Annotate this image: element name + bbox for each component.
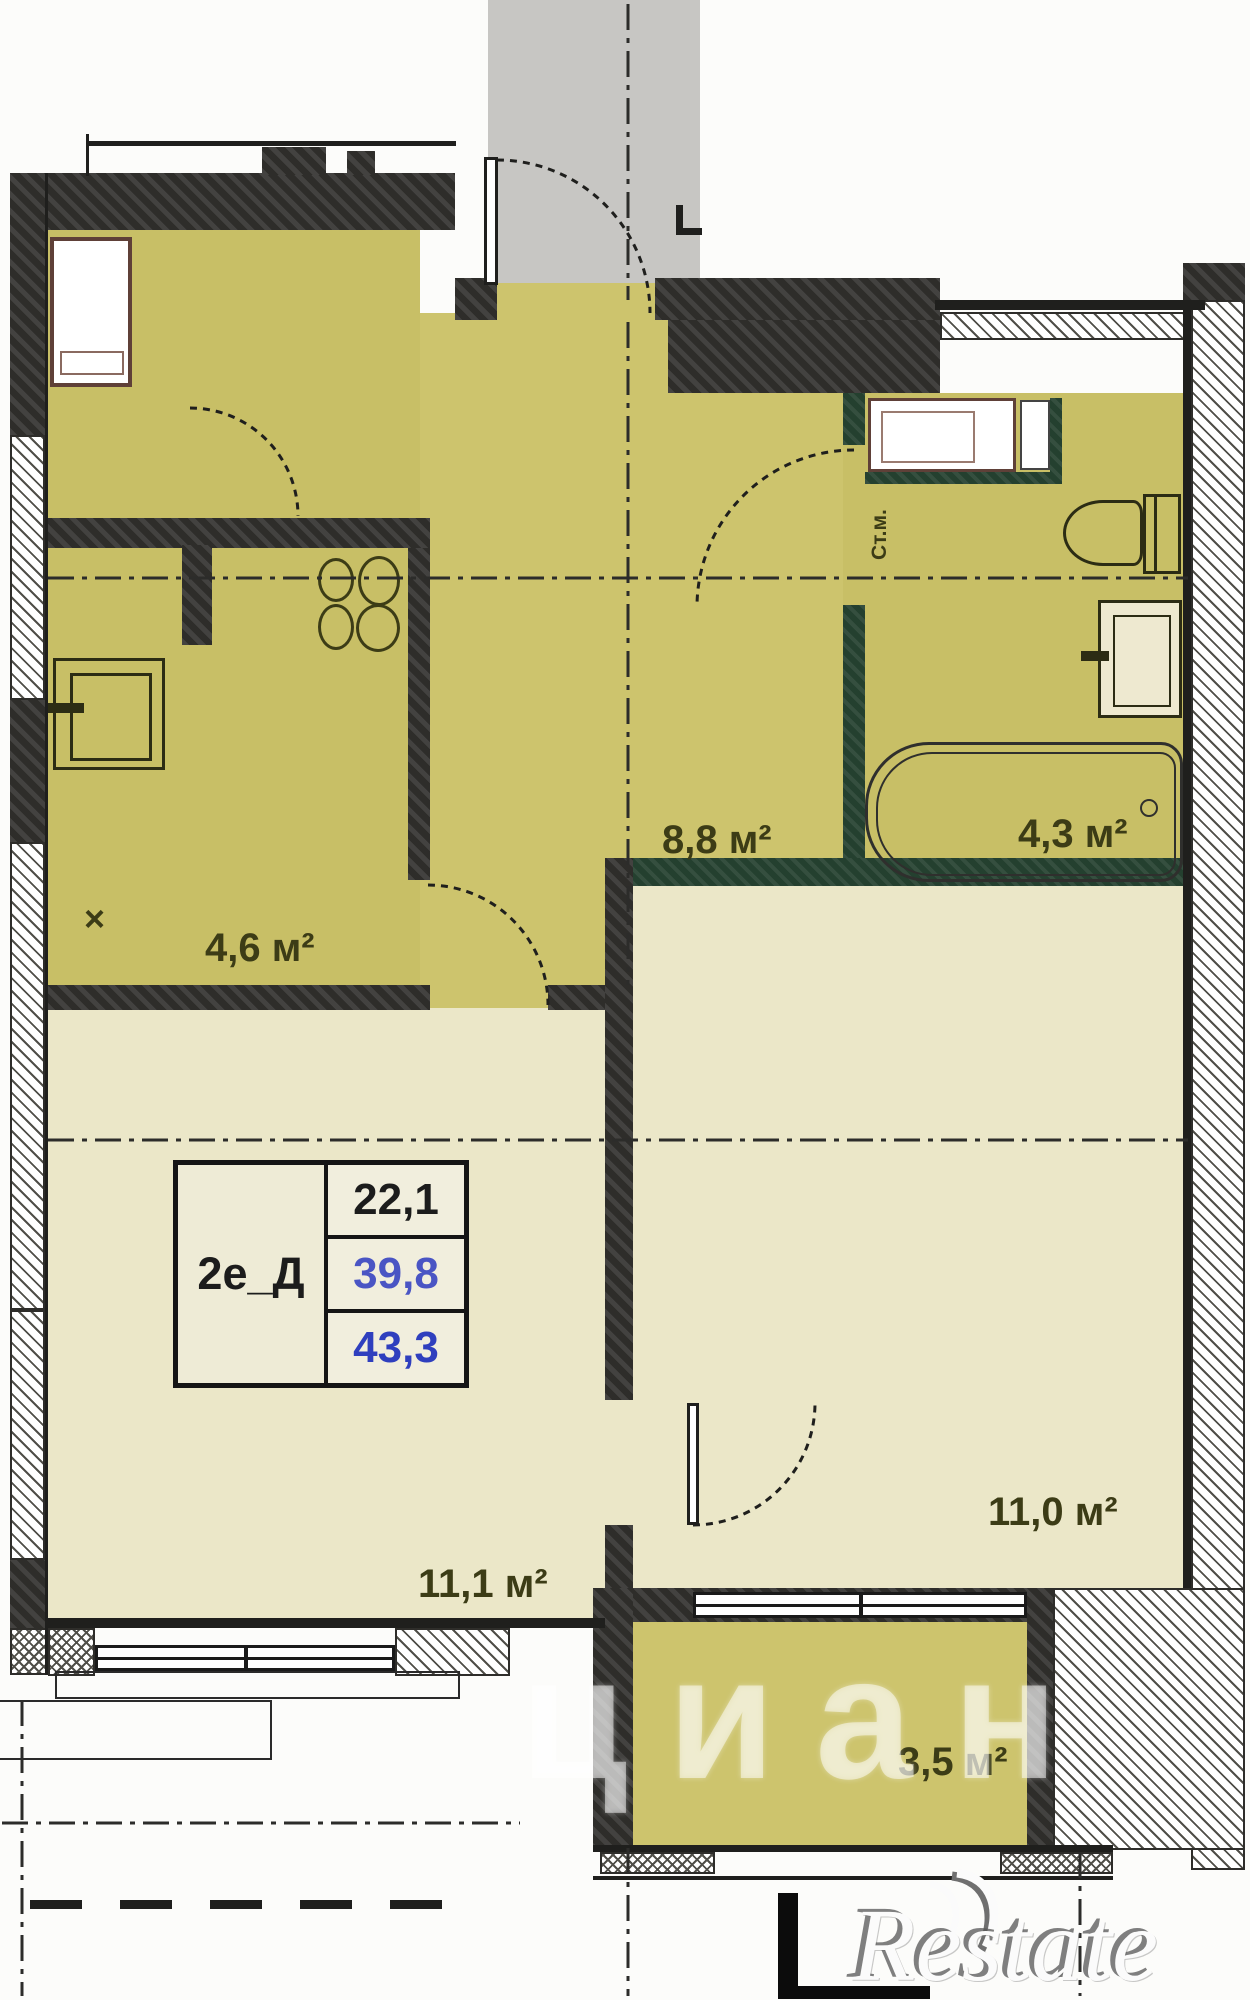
unit-area-table: 2е_Д 22,1 39,8 43,3 — [173, 1160, 469, 1388]
kitchen-niche-area-label: 4,6 м² — [205, 926, 315, 971]
bedroom-door-arc — [693, 1403, 815, 1525]
hallway-area-label: 8,8 м² — [662, 818, 772, 863]
kitchen-door-arc — [190, 408, 298, 516]
washing-machine-label: Ст.м. — [868, 492, 902, 578]
living-room-area-label: 11,1 м² — [418, 1562, 548, 1607]
restate-watermark: Restate — [852, 1886, 1158, 2000]
vent-marker: × — [84, 898, 105, 940]
area-without-balcony-value: 39,8 — [328, 1239, 464, 1313]
bathroom-door-arc — [697, 450, 854, 607]
passage-door-arc — [428, 885, 548, 1005]
floor-plan: × Ст.м. 4,6 — [0, 0, 1250, 2000]
cian-watermark: циан — [520, 1618, 1098, 1819]
living-area-value: 22,1 — [328, 1165, 464, 1239]
unit-type-label: 2е_Д — [178, 1165, 328, 1383]
bedroom-area-label: 11,0 м² — [988, 1490, 1118, 1535]
total-area-value: 43,3 — [328, 1313, 464, 1383]
bathroom-area-label: 4,3 м² — [1018, 812, 1128, 857]
